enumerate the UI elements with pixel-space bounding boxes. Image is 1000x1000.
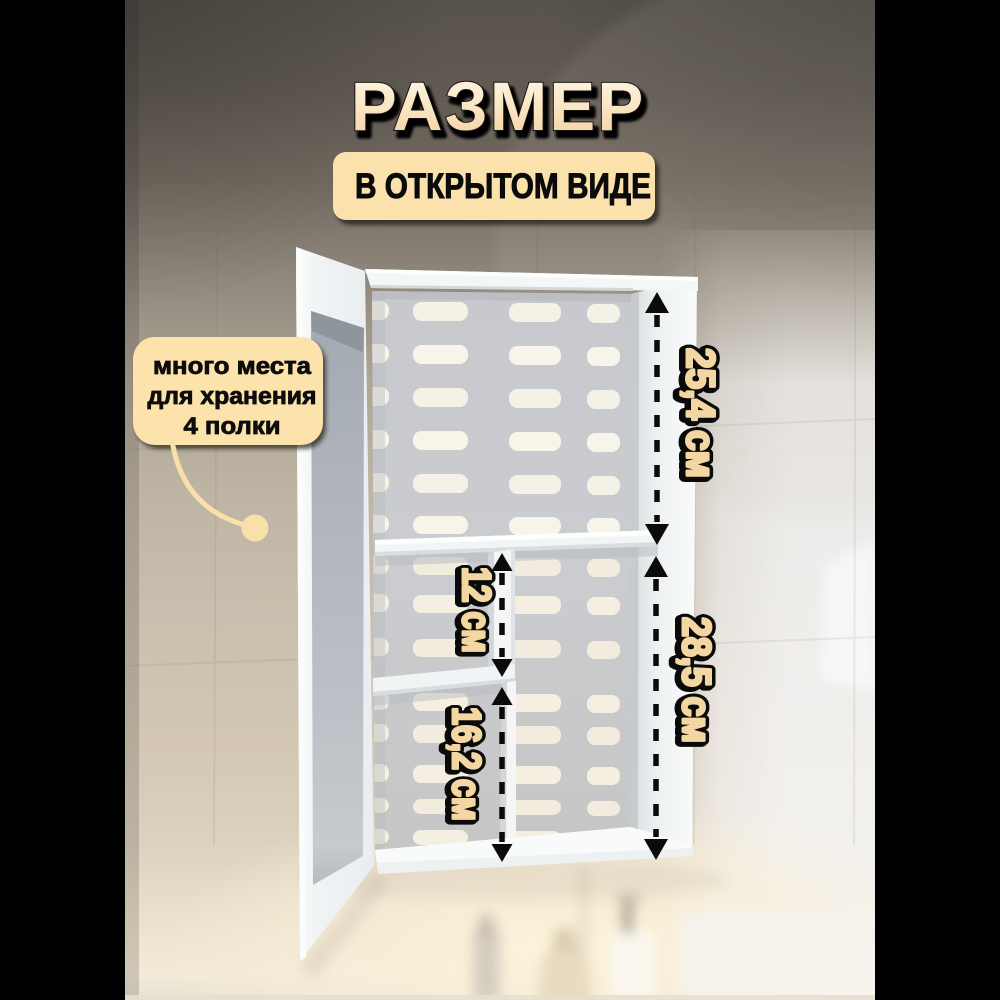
svg-text:4 полки: 4 полки: [184, 413, 281, 440]
svg-text:12 см: 12 см: [454, 567, 498, 653]
svg-text:для хранения: для хранения: [148, 383, 317, 410]
svg-text:25,4 см: 25,4 см: [678, 348, 722, 478]
svg-text:16,2 см: 16,2 см: [444, 707, 488, 821]
svg-text:много места: много места: [153, 353, 312, 380]
svg-text:РАЗМЕР: РАЗМЕР: [351, 68, 646, 145]
svg-text:28,5 см: 28,5 см: [674, 617, 718, 743]
svg-text:В ОТКРЫТОМ ВИДЕ: В ОТКРЫТОМ ВИДЕ: [355, 167, 651, 206]
